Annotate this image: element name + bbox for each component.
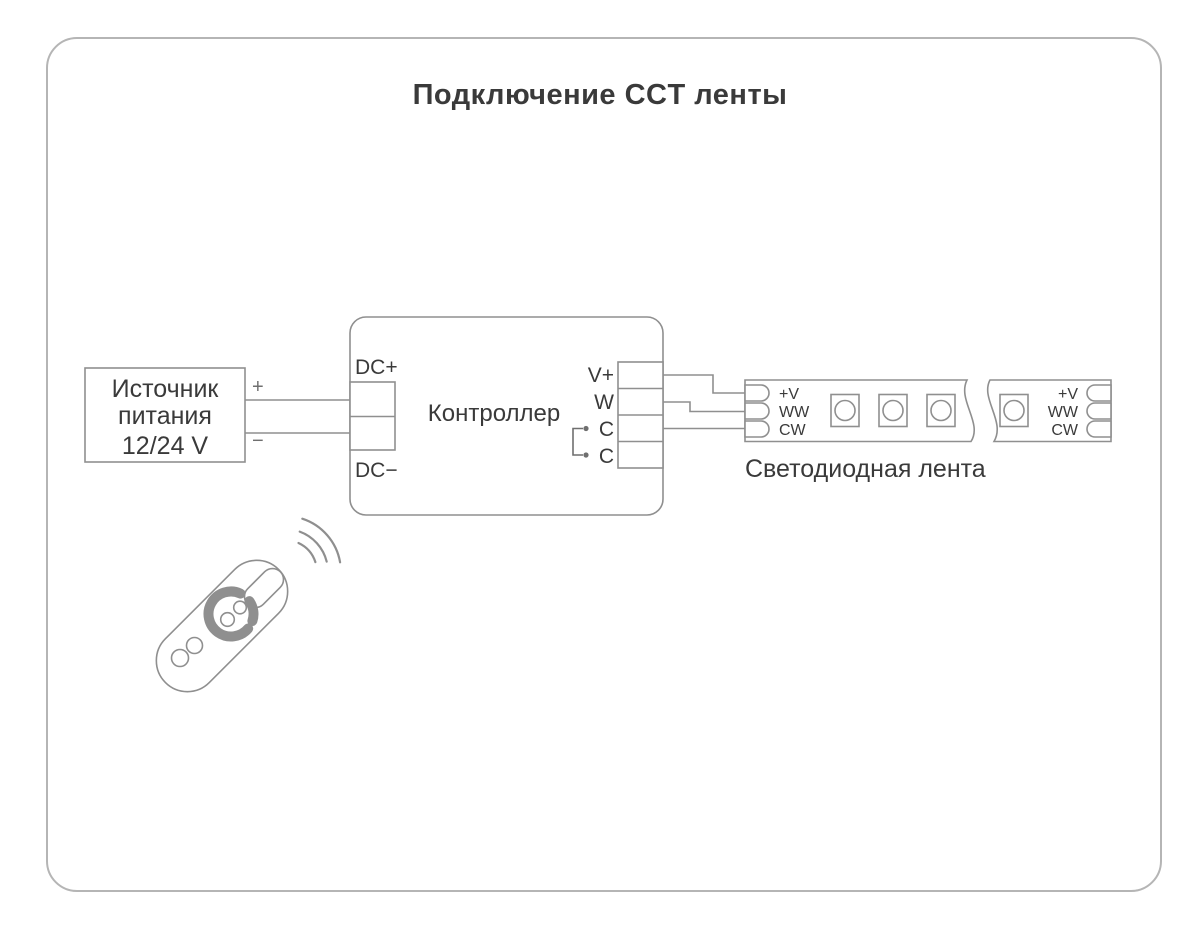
remote-button [172,650,189,667]
controller-label: Контроллер [428,400,560,427]
minus-label: − [252,430,264,452]
pad-label-v-plus-right: +V [1058,386,1078,403]
remote-touch-wheel-arc [249,601,253,621]
output-label-v-plus: V+ [588,364,614,387]
diagram-title: Подключение CCT ленты [413,79,788,111]
remote-wheel-dot [221,613,235,627]
remote-control [144,548,301,705]
strip-pad-ww-right [1087,403,1111,419]
strip-pad-cw-left [745,421,769,437]
diagram-page: Подключение CCT ленты + − Источник питан… [0,0,1200,932]
led-chip-lens [1004,401,1024,421]
output-label-c1: C [599,418,614,441]
led-chip-lens [835,401,855,421]
cc-jumper-dot [583,426,588,431]
pad-label-ww-right: WW [1048,404,1079,421]
power-supply-voltage: 12/24 V [122,432,209,460]
pad-label-cw-left: CW [779,422,807,439]
wire-w [663,402,745,412]
strip-pad-ww-left [745,403,769,419]
dc-minus-label: DC− [355,459,398,482]
wire-v-plus [663,375,745,393]
pad-label-v-plus-left: +V [779,386,799,403]
strip-pad-v-plus-left [745,385,769,401]
output-label-w: W [594,391,614,414]
dc-plus-label: DC+ [355,356,398,379]
pad-label-cw-right: CW [1051,422,1079,439]
plus-label: + [252,376,264,398]
output-label-c2: C [599,445,614,468]
power-supply-name-line1: Источник [112,375,220,403]
remote-wheel-dot [234,601,247,614]
cct-wiring-diagram: Подключение CCT ленты + − Источник питан… [0,0,1200,932]
led-chip-lens [931,401,951,421]
remote-button [187,638,203,654]
led-chip-lens [883,401,903,421]
strip-pad-v-plus-right [1087,385,1111,401]
power-supply-name-line2: питания [118,402,212,430]
strip-pad-cw-right [1087,421,1111,437]
wifi-signal-icon [299,519,341,563]
wifi-arc-large [302,519,340,563]
led-strip-label: Светодиодная лента [745,455,986,483]
wifi-arc-small [299,543,316,562]
cc-jumper-dot [583,452,588,457]
pad-label-ww-left: WW [779,404,810,421]
